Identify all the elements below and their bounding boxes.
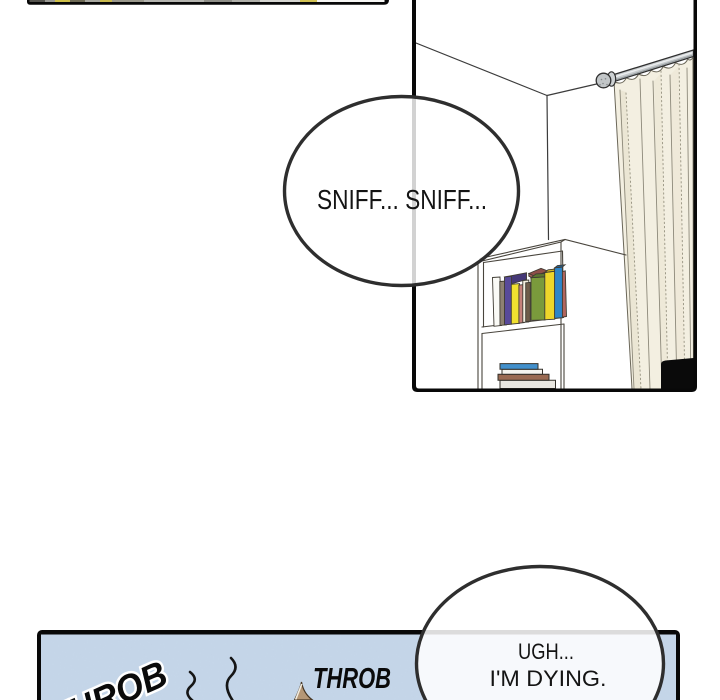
svg-text:SNIFF... SNIFF...: SNIFF... SNIFF... — [317, 184, 487, 215]
svg-text:I'M DYING.: I'M DYING. — [490, 666, 607, 691]
svg-text:UGH...: UGH... — [518, 639, 574, 664]
svg-text:THROB: THROB — [313, 663, 391, 695]
